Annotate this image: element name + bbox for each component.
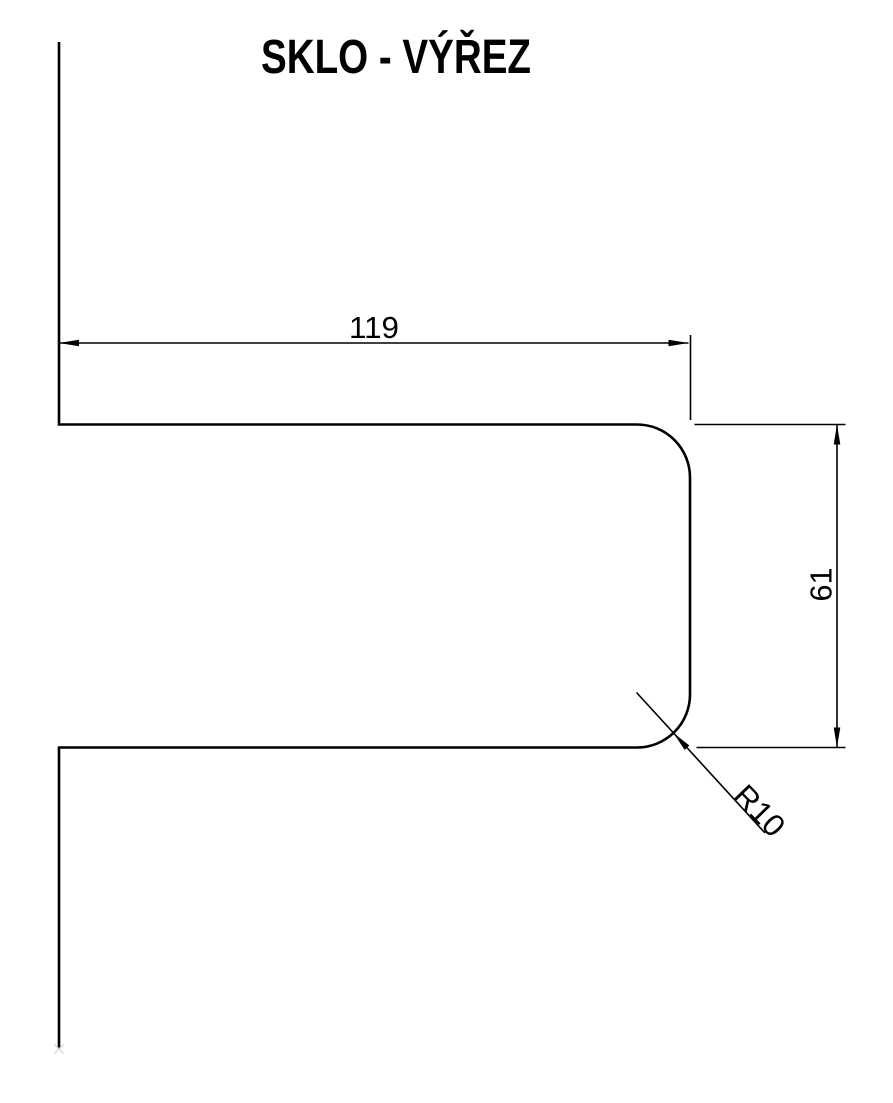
radius-dimension-value: R10 <box>727 778 792 844</box>
width-dimension-value: 119 <box>349 310 399 345</box>
radius-arrowhead <box>674 733 690 750</box>
width-arrowhead-right <box>669 340 689 347</box>
cad-drawing-canvas: SKLO - VÝŘEZ 119 61 R10 <box>0 0 893 1103</box>
drawing-sheet: SKLO - VÝŘEZ 119 61 R10 <box>0 0 893 1103</box>
height-dimension-value: 61 <box>804 568 839 602</box>
glass-outline-path <box>59 42 690 1049</box>
width-arrowhead-left <box>59 340 79 347</box>
height-arrowhead-top <box>834 425 841 445</box>
drawing-title: SKLO - VÝŘEZ <box>261 29 531 84</box>
height-arrowhead-bottom <box>834 728 841 748</box>
